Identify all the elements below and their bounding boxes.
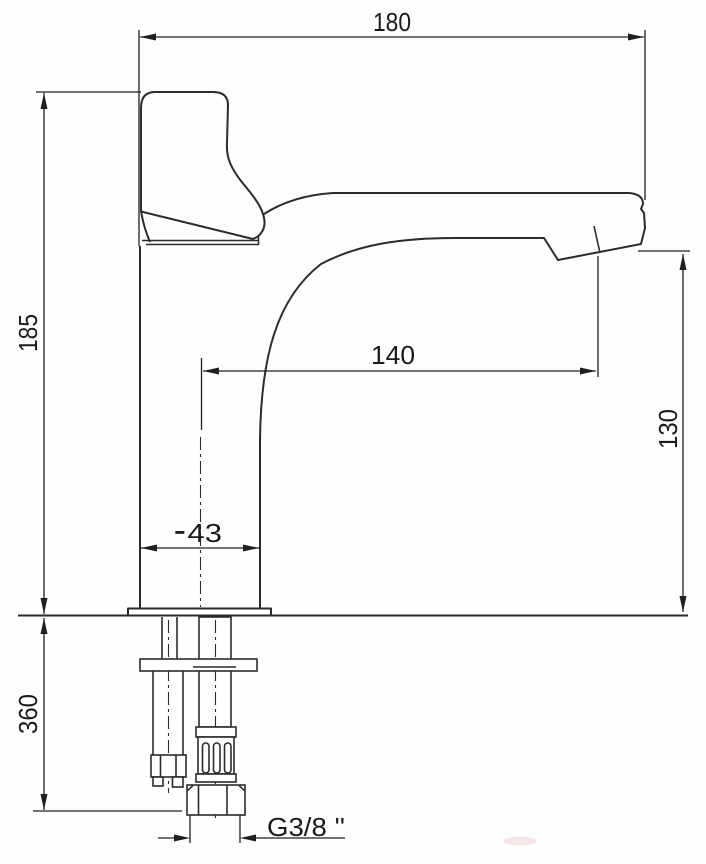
dim-360-arrow-top [41, 618, 48, 634]
dimension-130: 130 [638, 251, 690, 612]
drawing-page: 180 185 360 140 130 ⁃43 G3/8 '' [0, 0, 706, 864]
dim-label-base-diameter: ⁃43 [172, 518, 222, 548]
aerator-mark [594, 226, 600, 253]
dim-360-arrow-bottom [41, 794, 48, 810]
handle [141, 92, 265, 239]
dimension-thread-g38: G3/8 '' [158, 812, 345, 843]
dim-label-body-height: 185 [13, 314, 43, 352]
dim-label-spout-height: 130 [653, 409, 683, 449]
dim-label-below-counter: 360 [13, 694, 43, 734]
threaded-stud-upper [162, 617, 177, 659]
dim-130-arrow-top [680, 254, 687, 270]
dimension-diameter-43: ⁃43 [141, 518, 259, 552]
watermark-smudge [503, 837, 537, 846]
hose-collar-flare [196, 774, 236, 782]
dim-43-arrow-left [141, 545, 157, 552]
dimension-180: 180 [139, 7, 645, 246]
dim-185-arrow-top [41, 93, 48, 109]
dim-130-arrow-bottom [680, 596, 687, 612]
stud-prong-right [173, 777, 184, 787]
dim-140-arrow-left [203, 368, 219, 375]
hose-collar-top [196, 727, 236, 737]
body-top-joint [142, 236, 259, 245]
dim-label-top-width: 180 [373, 7, 411, 37]
dim-180-line [139, 30, 645, 246]
dim-g38-arrow-left [174, 835, 190, 842]
mounting-plate [140, 659, 257, 671]
under-counter-hardware [140, 617, 257, 815]
dim-185-line [36, 92, 141, 614]
dim-180-arrow-left [140, 34, 156, 41]
dim-140-arrow-right [580, 368, 596, 375]
dimension-185: 185 [13, 92, 141, 614]
dim-180-arrow-right [628, 34, 644, 41]
technical-drawing-canvas: 180 185 360 140 130 ⁃43 G3/8 '' [0, 0, 706, 864]
hose-hex-nut [187, 785, 245, 815]
dim-43-arrow-right [243, 545, 259, 552]
handle-cap-edge [141, 211, 150, 242]
lock-nut [151, 755, 186, 777]
body-and-spout [260, 193, 645, 609]
dim-label-spout-reach: 140 [371, 340, 415, 370]
stud-prong-left [153, 777, 163, 786]
dim-label-supply-thread: G3/8 '' [267, 812, 345, 842]
dim-185-arrow-bottom [41, 598, 48, 614]
dim-g38-arrow-right [240, 835, 256, 842]
